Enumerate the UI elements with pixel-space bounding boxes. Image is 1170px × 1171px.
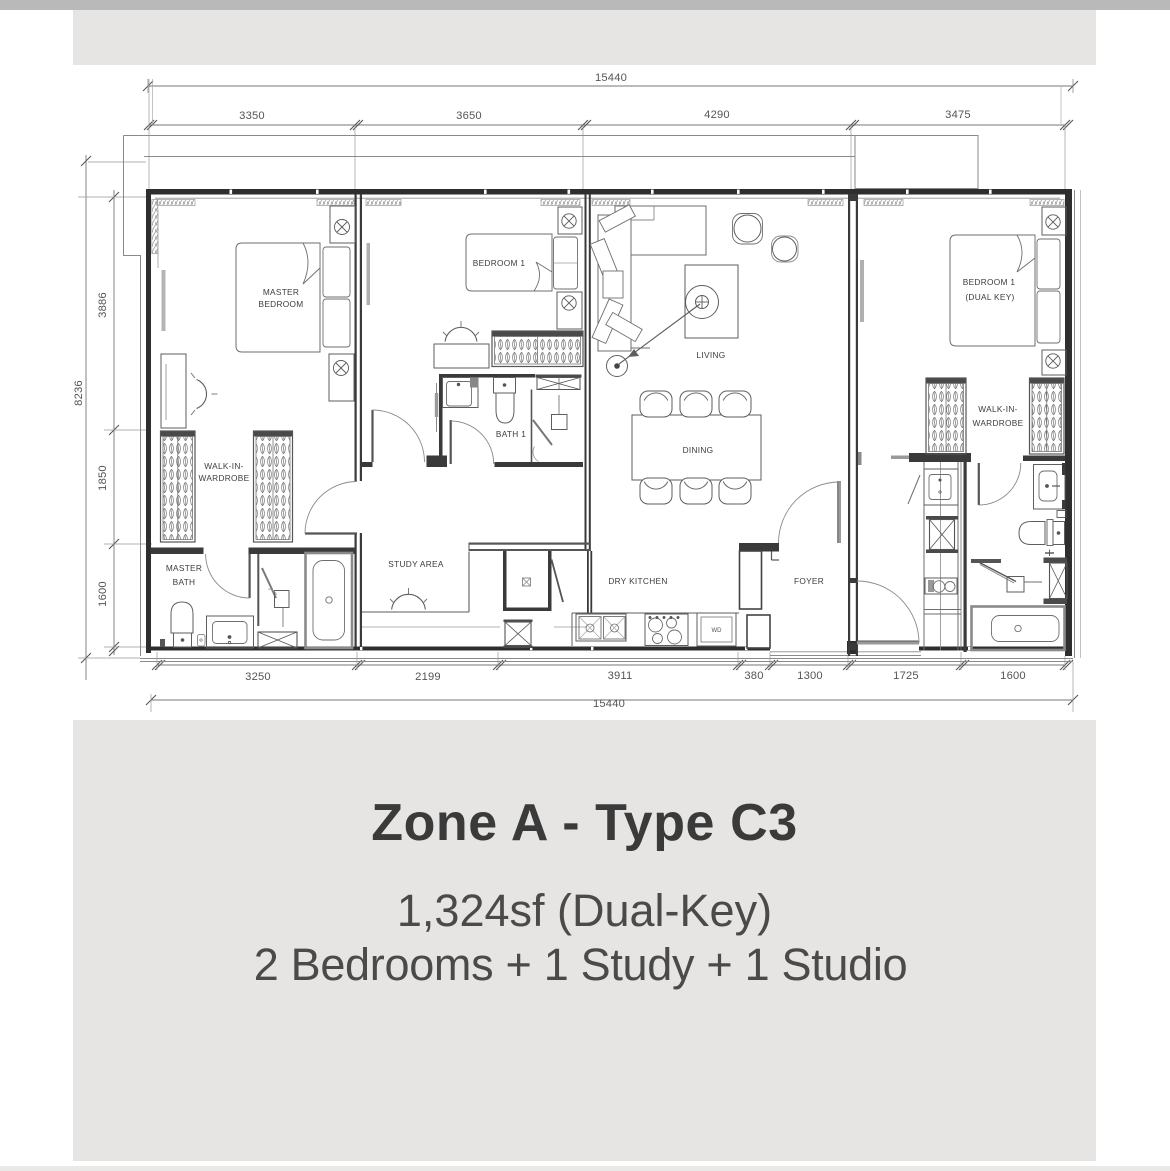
svg-text:1600: 1600 xyxy=(97,581,109,607)
svg-text:WALK-IN-: WALK-IN- xyxy=(978,404,1017,414)
svg-text:DRY KITCHEN: DRY KITCHEN xyxy=(608,576,667,586)
svg-text:2199: 2199 xyxy=(415,671,441,683)
svg-text:3886: 3886 xyxy=(97,292,109,318)
svg-text:BATH: BATH xyxy=(173,577,196,587)
svg-text:MASTER: MASTER xyxy=(166,563,202,573)
svg-text:3911: 3911 xyxy=(608,670,633,682)
svg-text:15440: 15440 xyxy=(595,72,627,84)
svg-text:8236: 8236 xyxy=(73,380,85,406)
svg-text:4290: 4290 xyxy=(704,109,730,121)
svg-text:3250: 3250 xyxy=(245,671,271,683)
svg-text:1300: 1300 xyxy=(797,670,823,682)
svg-text:1850: 1850 xyxy=(97,465,109,491)
svg-text:15440: 15440 xyxy=(593,698,625,710)
svg-text:1725: 1725 xyxy=(893,670,919,682)
svg-text:BATH 1: BATH 1 xyxy=(496,429,526,439)
svg-text:1600: 1600 xyxy=(1000,670,1026,682)
svg-text:3475: 3475 xyxy=(945,109,971,121)
svg-text:WD: WD xyxy=(712,628,723,634)
svg-text:MASTER: MASTER xyxy=(263,287,299,297)
svg-text:BEDROOM 1: BEDROOM 1 xyxy=(963,277,1016,287)
svg-text:WARDROBE: WARDROBE xyxy=(199,473,250,483)
svg-text:LIVING: LIVING xyxy=(696,350,725,360)
svg-text:380: 380 xyxy=(744,670,763,682)
svg-text:3350: 3350 xyxy=(239,110,265,122)
svg-text:WARDROBE: WARDROBE xyxy=(973,418,1024,428)
svg-text:FOYER: FOYER xyxy=(794,576,824,586)
svg-text:BEDROOM 1: BEDROOM 1 xyxy=(473,258,526,268)
svg-text:WALK-IN-: WALK-IN- xyxy=(204,461,243,471)
svg-text:STUDY AREA: STUDY AREA xyxy=(388,559,444,569)
svg-text:DINING: DINING xyxy=(683,445,714,455)
svg-text:BEDROOM: BEDROOM xyxy=(259,299,304,309)
svg-text:3650: 3650 xyxy=(456,110,482,122)
svg-text:(DUAL KEY): (DUAL KEY) xyxy=(965,292,1014,302)
